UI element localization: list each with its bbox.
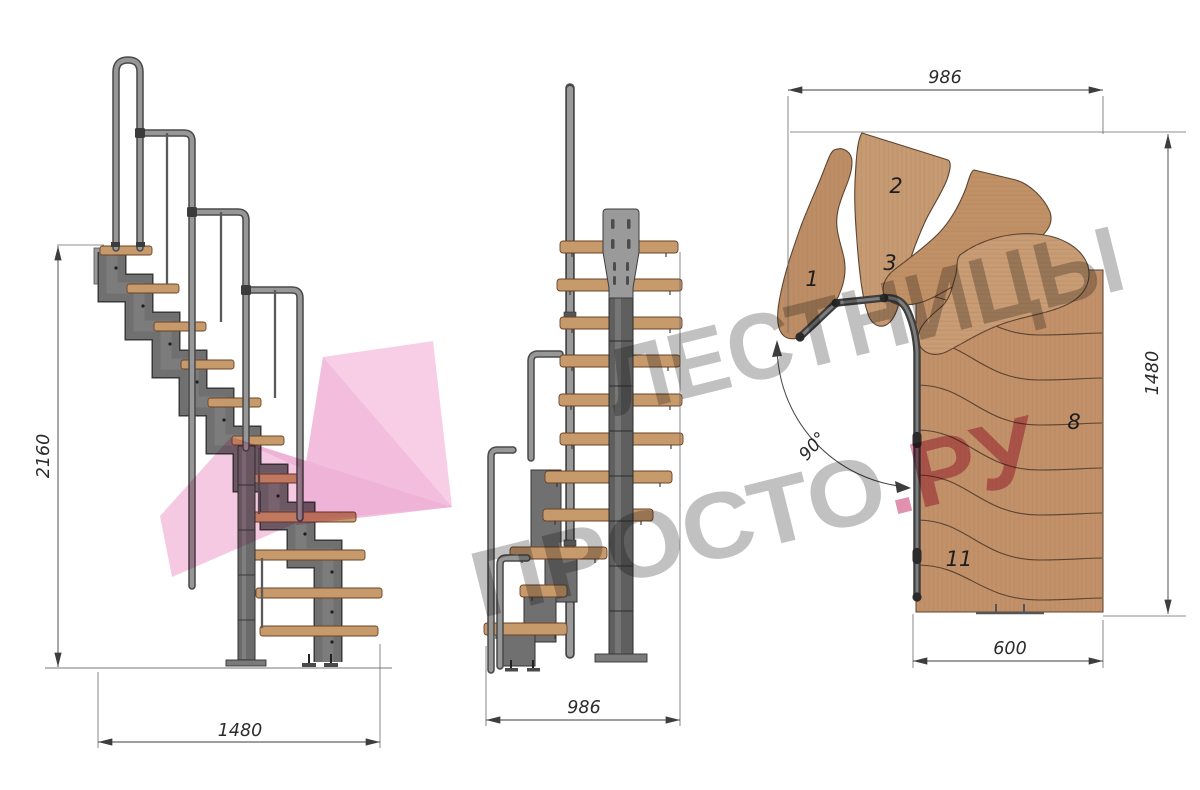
technical-drawing: 2160 1480 bbox=[0, 0, 1200, 790]
dimension-plan-bottom: 600 bbox=[913, 614, 1103, 668]
tread bbox=[260, 626, 378, 636]
watermark-text-gray: ПРОСТО bbox=[460, 433, 896, 637]
tread bbox=[154, 322, 206, 331]
staircase-drawing-page: 2160 1480 bbox=[0, 0, 1200, 790]
rail-joint bbox=[913, 548, 922, 564]
dim-label-plan-top: 986 bbox=[928, 68, 961, 88]
dim-label-side-width: 1480 bbox=[218, 721, 263, 741]
rail-clamp bbox=[241, 285, 251, 295]
tread bbox=[256, 588, 382, 598]
front-handrail-upper bbox=[531, 354, 560, 458]
tread bbox=[252, 550, 365, 560]
step-number-11: 11 bbox=[946, 547, 973, 571]
column-base-plate bbox=[226, 660, 266, 666]
dim-label-plan-right: 1480 bbox=[1143, 351, 1163, 396]
tread bbox=[100, 246, 152, 255]
column-base-plate bbox=[595, 654, 647, 662]
step-number-2: 2 bbox=[889, 174, 902, 198]
tread bbox=[208, 398, 261, 407]
mounting-plate bbox=[603, 209, 639, 298]
step-number-8: 8 bbox=[1067, 410, 1080, 434]
dim-label-plan-bottom: 600 bbox=[993, 639, 1026, 659]
dimension-side-height: 2160 bbox=[34, 245, 104, 667]
front-handrail-upper-highlight bbox=[531, 354, 560, 458]
dim-label-side-height: 2160 bbox=[34, 434, 54, 479]
dim-label-front-width: 986 bbox=[567, 698, 600, 718]
rail-clamp bbox=[187, 207, 197, 217]
tread bbox=[127, 284, 179, 293]
rail-foot bbox=[136, 242, 145, 247]
rail-clamp bbox=[135, 128, 145, 138]
handrail-loop bbox=[116, 60, 140, 248]
rail-foot bbox=[111, 242, 120, 247]
rail-end bbox=[912, 592, 921, 601]
